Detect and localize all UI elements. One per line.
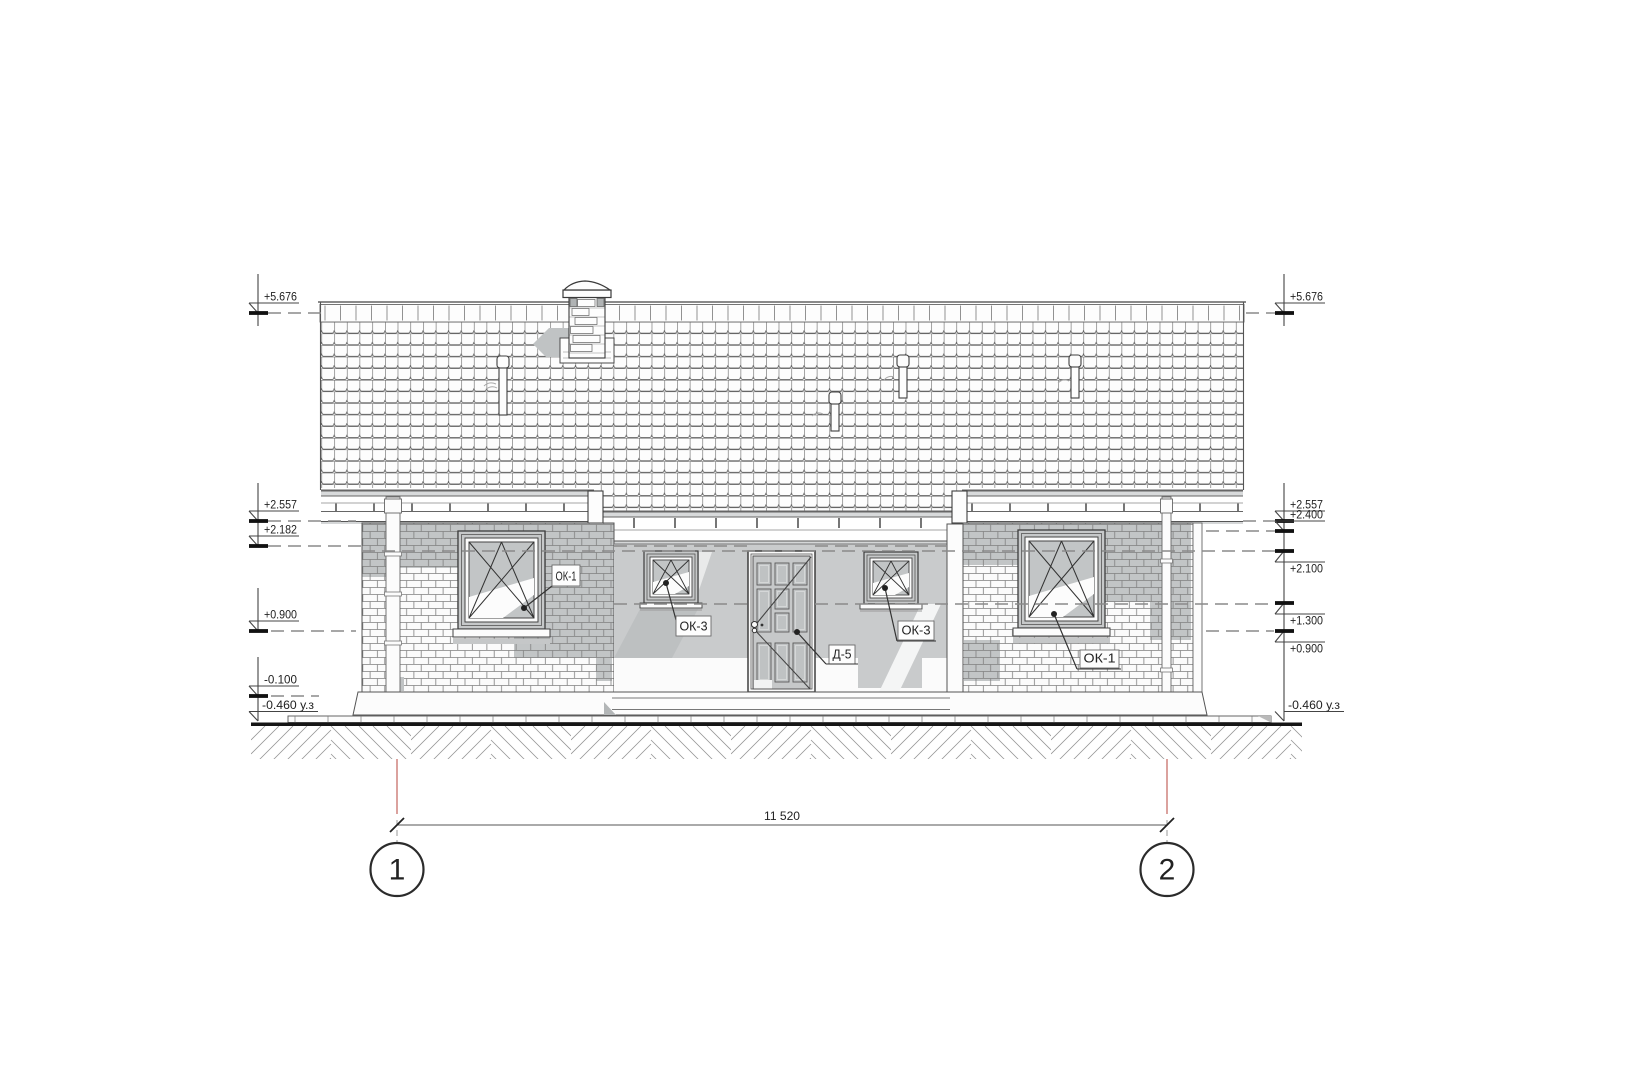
svg-text:-0.100: -0.100 [264,673,297,687]
svg-text:+0.900: +0.900 [1290,642,1323,656]
svg-text:-0.460 у.з: -0.460 у.з [262,698,315,712]
svg-text:+0.900: +0.900 [264,608,297,622]
svg-text:+5.676: +5.676 [264,290,297,304]
svg-text:+2.557: +2.557 [264,498,297,512]
svg-text:11 520: 11 520 [764,809,800,823]
svg-text:Д-5: Д-5 [833,648,852,662]
svg-text:ОК-3: ОК-3 [902,624,931,638]
svg-text:+2.100: +2.100 [1290,562,1323,576]
svg-text:+2.400: +2.400 [1290,508,1323,522]
svg-text:1: 1 [389,854,406,887]
svg-text:ОК-1: ОК-1 [1084,652,1116,666]
svg-text:ОК-3: ОК-3 [680,620,708,634]
svg-text:+2.182: +2.182 [264,523,297,537]
svg-text:+1.300: +1.300 [1290,614,1323,628]
svg-text:2: 2 [1159,854,1176,887]
svg-text:ОК-1: ОК-1 [556,570,577,584]
svg-text:-0.460 у.з: -0.460 у.з [1288,698,1341,712]
svg-text:+5.676: +5.676 [1290,290,1323,304]
